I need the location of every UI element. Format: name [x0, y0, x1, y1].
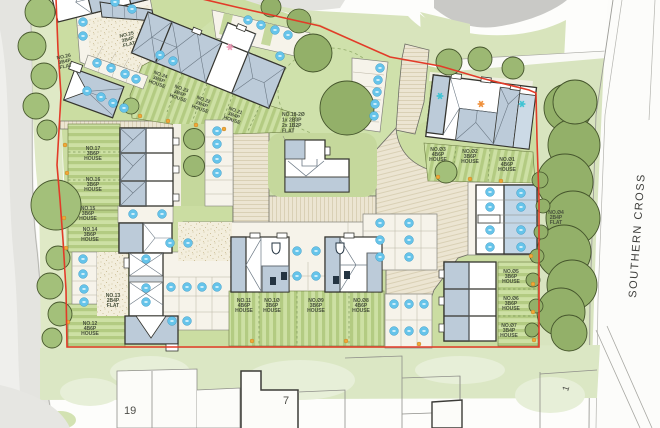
svg-text:HOUSE: HOUSE [81, 237, 99, 243]
svg-text:HOUSE: HOUSE [352, 308, 370, 314]
svg-text:HOUSE: HOUSE [498, 167, 516, 173]
svg-text:HOUSE: HOUSE [502, 279, 520, 285]
svg-text:HOUSE: HOUSE [502, 306, 520, 312]
svg-text:HOUSE: HOUSE [461, 159, 479, 165]
svg-text:HOUSE: HOUSE [500, 333, 518, 339]
svg-text:FLAT: FLAT [107, 303, 119, 309]
svg-text:HOUSE: HOUSE [429, 157, 447, 163]
svg-text:HOUSE: HOUSE [84, 156, 102, 162]
svg-text:19: 19 [124, 405, 136, 417]
svg-text:FLAT: FLAT [550, 220, 562, 226]
svg-text:HOUSE: HOUSE [81, 331, 99, 337]
svg-text:FLAT: FLAT [282, 129, 294, 135]
svg-text:HOUSE: HOUSE [235, 308, 253, 314]
svg-text:HOUSE: HOUSE [79, 216, 97, 222]
svg-text:7: 7 [283, 395, 289, 407]
svg-text:HOUSE: HOUSE [84, 187, 102, 193]
svg-text:HOUSE: HOUSE [263, 308, 281, 314]
svg-text:HOUSE: HOUSE [307, 308, 325, 314]
